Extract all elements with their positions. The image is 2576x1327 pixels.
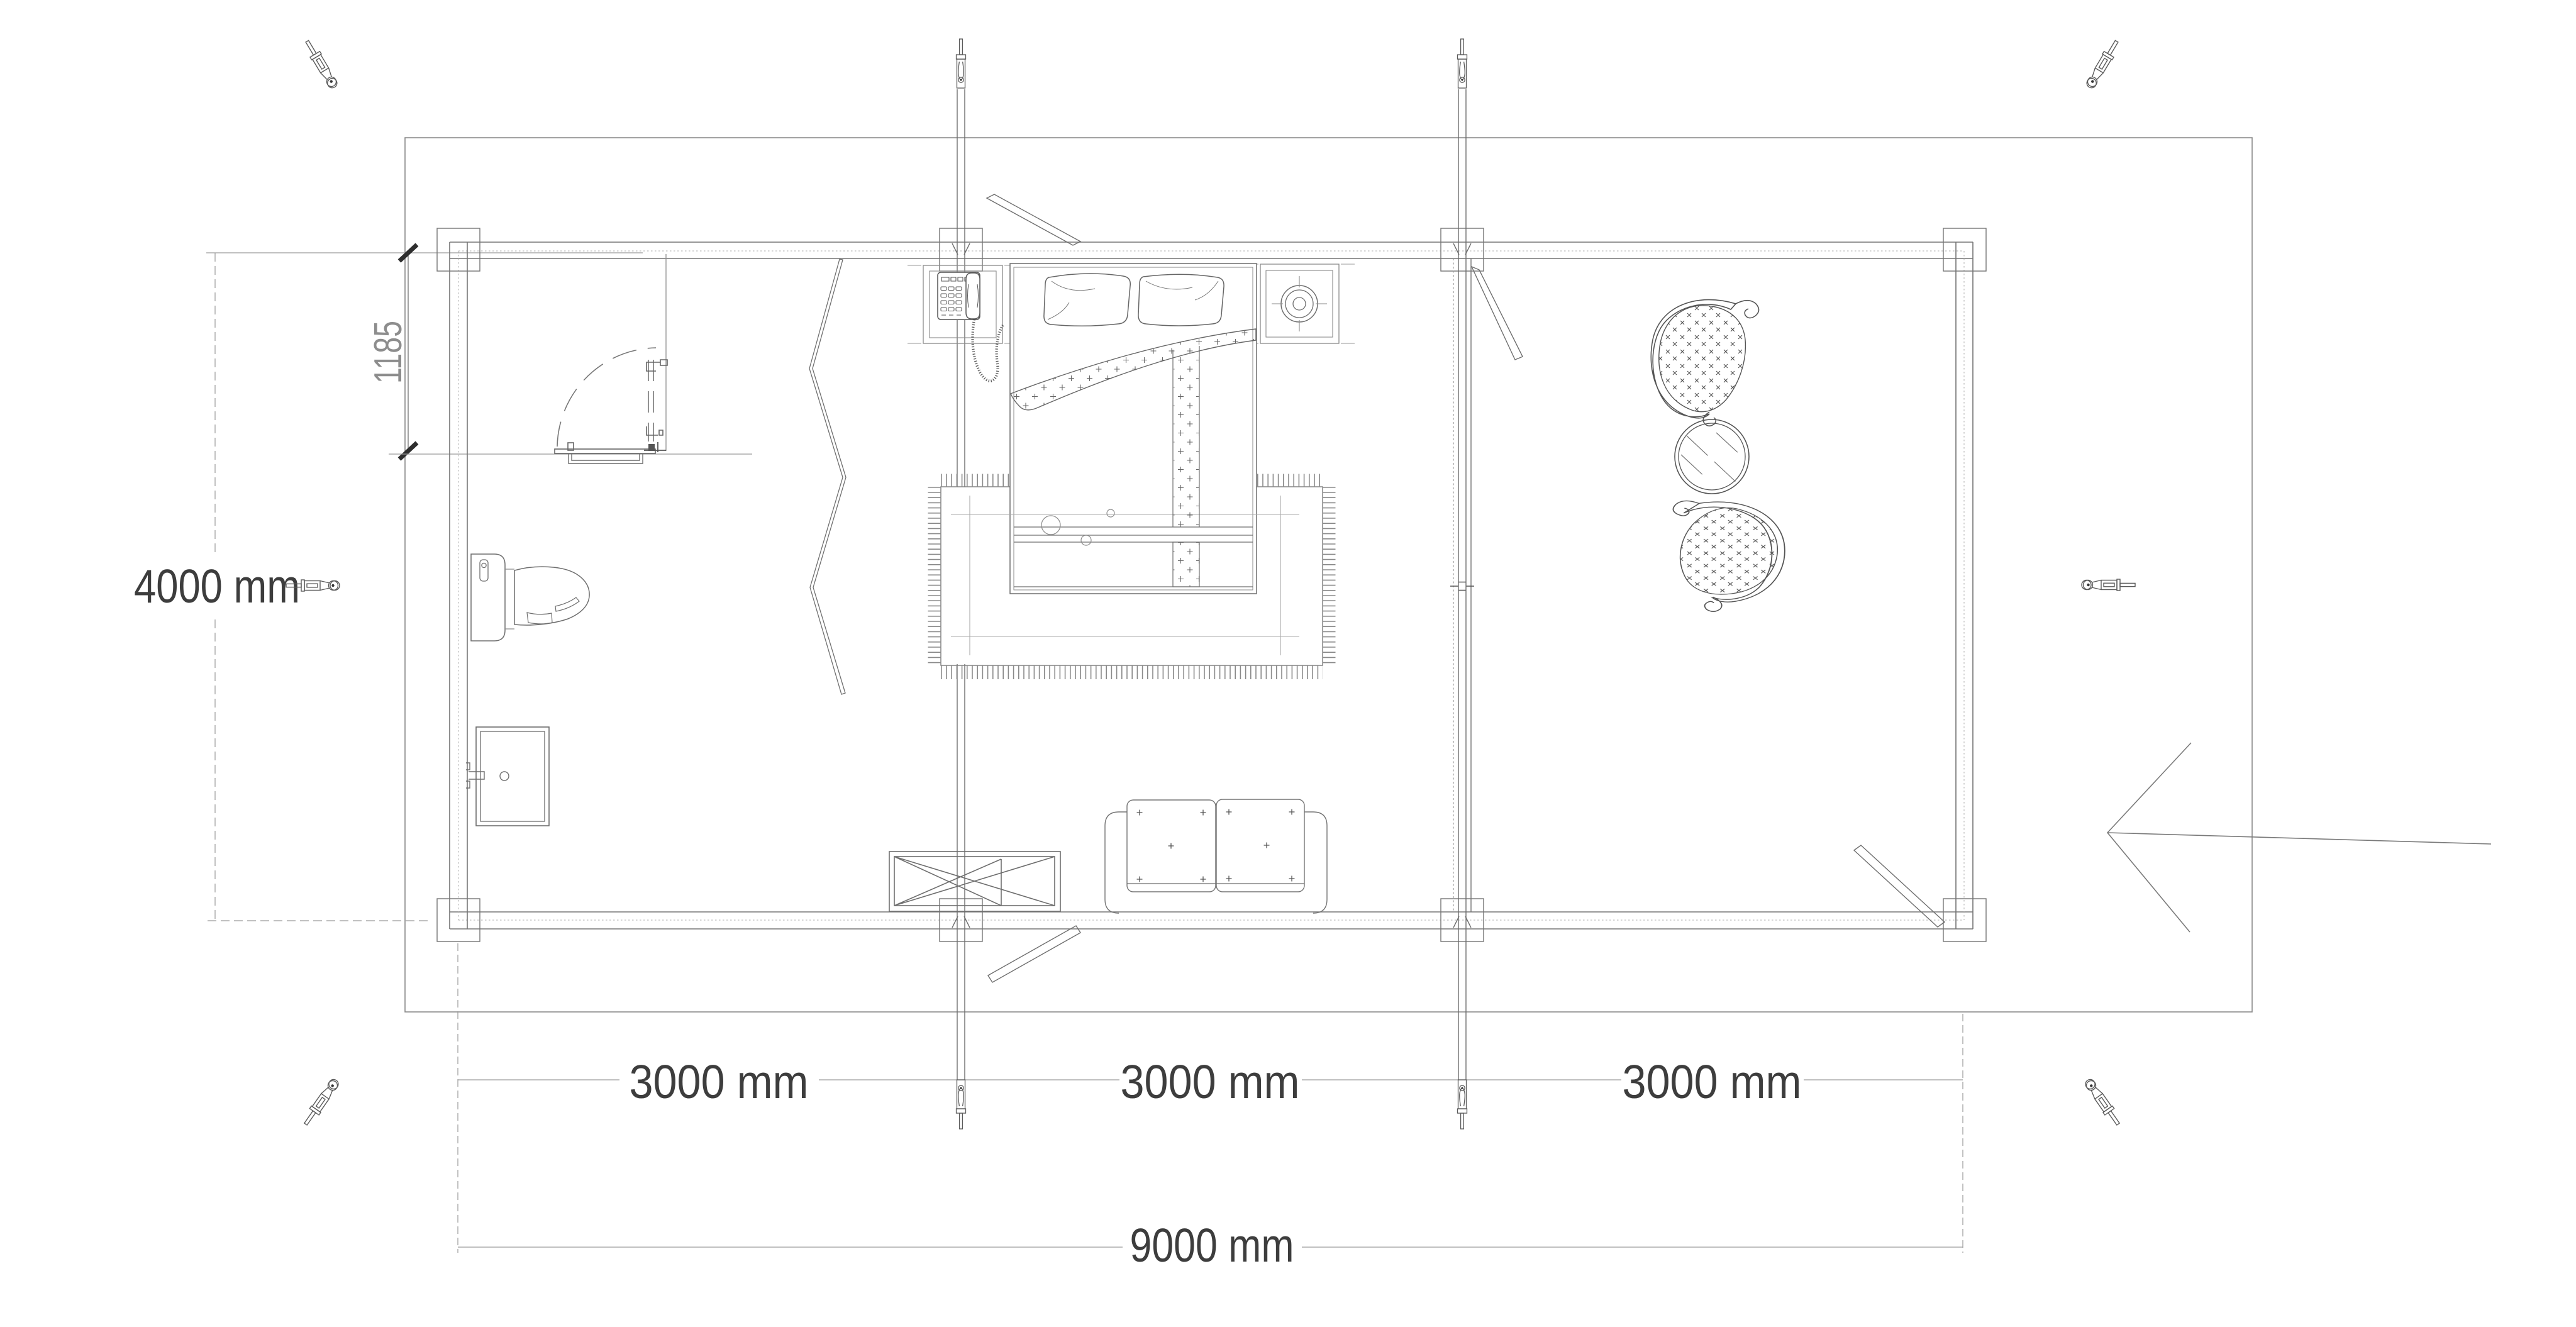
svg-text:1185: 1185 bbox=[367, 321, 410, 384]
svg-text:3000 mm: 3000 mm bbox=[630, 1055, 809, 1108]
svg-text:3000 mm: 3000 mm bbox=[1623, 1055, 1802, 1108]
svg-text:4000 mm: 4000 mm bbox=[134, 560, 300, 613]
svg-text:3000 mm: 3000 mm bbox=[1121, 1055, 1300, 1108]
svg-text:9000 mm: 9000 mm bbox=[1130, 1219, 1294, 1272]
